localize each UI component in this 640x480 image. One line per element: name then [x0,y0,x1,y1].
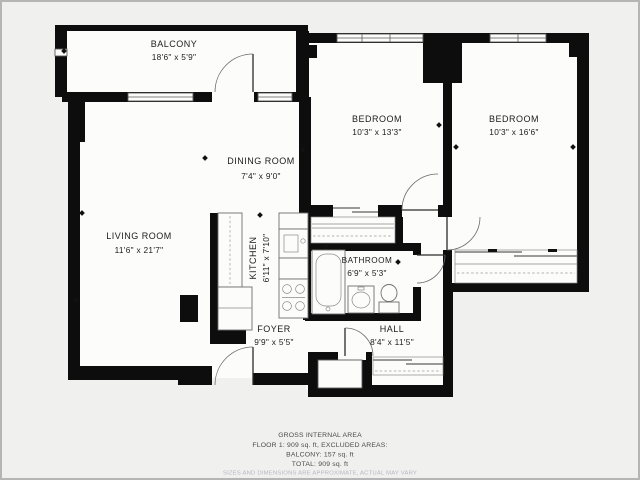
dining-room-label: DINING ROOM [227,156,295,166]
bedroom2-closet-handle2 [548,249,557,252]
floor-plan-page: BALCONY 18'6" x 5'9" DINING ROOM 7'4" x … [0,0,640,480]
balcony-area-line: BALCONY: 157 sq. ft [286,452,354,459]
bedroom2-bottom-wall [443,283,587,292]
structural-column [423,33,462,83]
bathroom-sink [348,286,374,313]
bedroom2-dims: 10'3" x 16'6" [489,127,538,137]
gross-internal-area-title: GROSS INTERNAL AREA [278,432,362,439]
bedroom1-closet-opening [333,205,378,217]
bedroom1-door-opening [402,205,438,217]
toilet-bowl [381,285,397,302]
dining-bedroom1-wall [299,97,311,217]
entry-closet-door-opening [338,352,366,360]
balcony-door-opening [212,92,254,102]
kitchen-stove [279,279,308,318]
left-wall-step [80,102,85,142]
disclaimer-line: SIZES AND DIMENSIONS ARE APPROXIMATE, AC… [223,471,417,477]
bedroom2-label: BEDROOM [489,114,539,124]
living-room-dims: 11'6" x 21'7" [115,245,164,255]
balcony-dims: 18'6" x 5'9" [152,52,197,62]
kitchen-left-wall [210,213,218,310]
bedroom-divider-wall [443,83,452,217]
closet-right-wall [395,217,403,243]
bathtub [312,250,345,314]
bottom-wall-hall [372,385,453,397]
bathroom-dims: 6'9" x 5'3" [347,268,387,278]
bathroom-right-wall-lower [413,287,421,321]
balcony-left-wall [55,25,67,97]
kitchen-cabinet-lower [218,287,252,330]
kitchen-counter-mid [279,258,308,279]
floor-plan-drawing: BALCONY 18'6" x 5'9" DINING ROOM 7'4" x … [0,0,640,480]
foyer-wall-stub [180,295,198,322]
right-wall-notch [569,43,577,57]
hall-label: HALL [380,324,405,334]
kitchen-dims: 6'11" x 7'10" [261,234,271,283]
entry-closet-interior [318,360,362,388]
bathroom-right-wall-upper [413,243,421,255]
stove-outline [279,279,308,318]
kitchen-label: KITCHEN [248,236,258,279]
floor1-area-line: FLOOR 1: 909 sq. ft, EXCLUDED AREAS: [252,442,387,449]
balcony-label: BALCONY [151,39,198,49]
right-exterior-wall [577,43,589,292]
bedroom1-dims: 10'3" x 13'3" [352,127,401,137]
kitchen-sink-unit [279,229,308,258]
hall-dims: 8'4" x 11'5" [370,337,414,347]
bedroom2-floor [449,40,580,285]
bedroom1-label: BEDROOM [352,114,402,124]
bottom-wall-step [178,366,212,385]
bottom-wall-foyer [253,373,310,385]
left-exterior-wall [68,92,80,378]
living-room-label: LIVING ROOM [106,231,172,241]
hall-right-wall [443,292,453,397]
bathroom-label: BATHROOM [342,256,393,265]
total-area-line: TOTAL: 909 sq. ft [292,461,348,468]
toilet-tank [379,302,399,313]
kitchen-counter-top-right [279,213,308,229]
foyer-label: FOYER [257,324,291,334]
balcony-right-wall-step [309,45,317,58]
balcony-right-wall [296,31,309,102]
dining-room-dims: 7'4" x 9'0" [241,171,281,181]
balcony-top-wall [55,25,308,31]
foyer-dims: 9'9" x 5'5" [254,337,294,347]
bottom-wall-living [68,366,185,380]
bathroom-door-opening [413,255,421,287]
bedroom2-closet-handle1 [488,249,497,252]
